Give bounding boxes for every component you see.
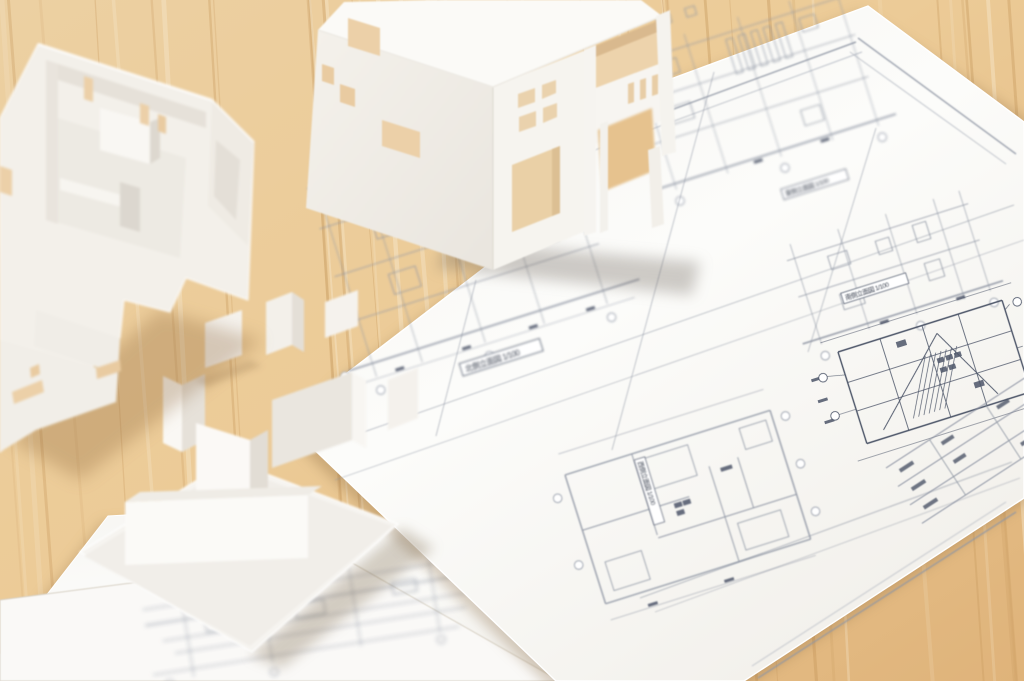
window-slot [158, 114, 166, 134]
balcony-slot [640, 78, 646, 100]
house-door-shade [552, 146, 560, 216]
model-opening [120, 182, 140, 232]
balcony-slot [628, 82, 634, 104]
model-wall [46, 60, 58, 224]
balcony-slot [652, 74, 658, 96]
model-wall [266, 292, 292, 355]
window-slot [140, 103, 149, 126]
window-slot [0, 166, 12, 196]
balcony-post [584, 45, 596, 236]
model-wall [352, 372, 366, 448]
scene-canvas: 北側立面図 1/100 東側立面図 1/100 南側立面図 1/100 西側立面… [0, 0, 1024, 681]
balcony-post [600, 121, 608, 233]
model-wall [292, 292, 304, 352]
window-slot [84, 76, 93, 102]
model-wall [125, 495, 308, 565]
scene-photo: 北側立面図 1/100 東側立面図 1/100 南側立面図 1/100 西側立面… [0, 0, 1024, 681]
